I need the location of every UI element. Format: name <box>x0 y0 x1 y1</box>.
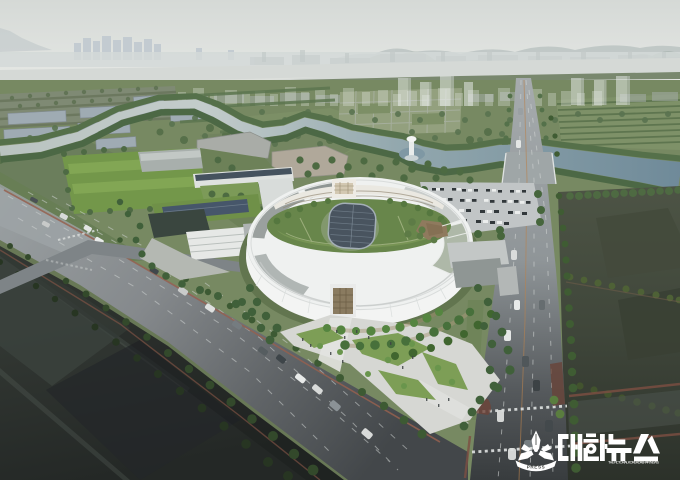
svg-text:THE PICTORIAL KOREA DAEHAN NEW: THE PICTORIAL KOREA DAEHAN NEWS <box>608 461 659 465</box>
svg-text:PRESS: PRESS <box>527 465 546 470</box>
